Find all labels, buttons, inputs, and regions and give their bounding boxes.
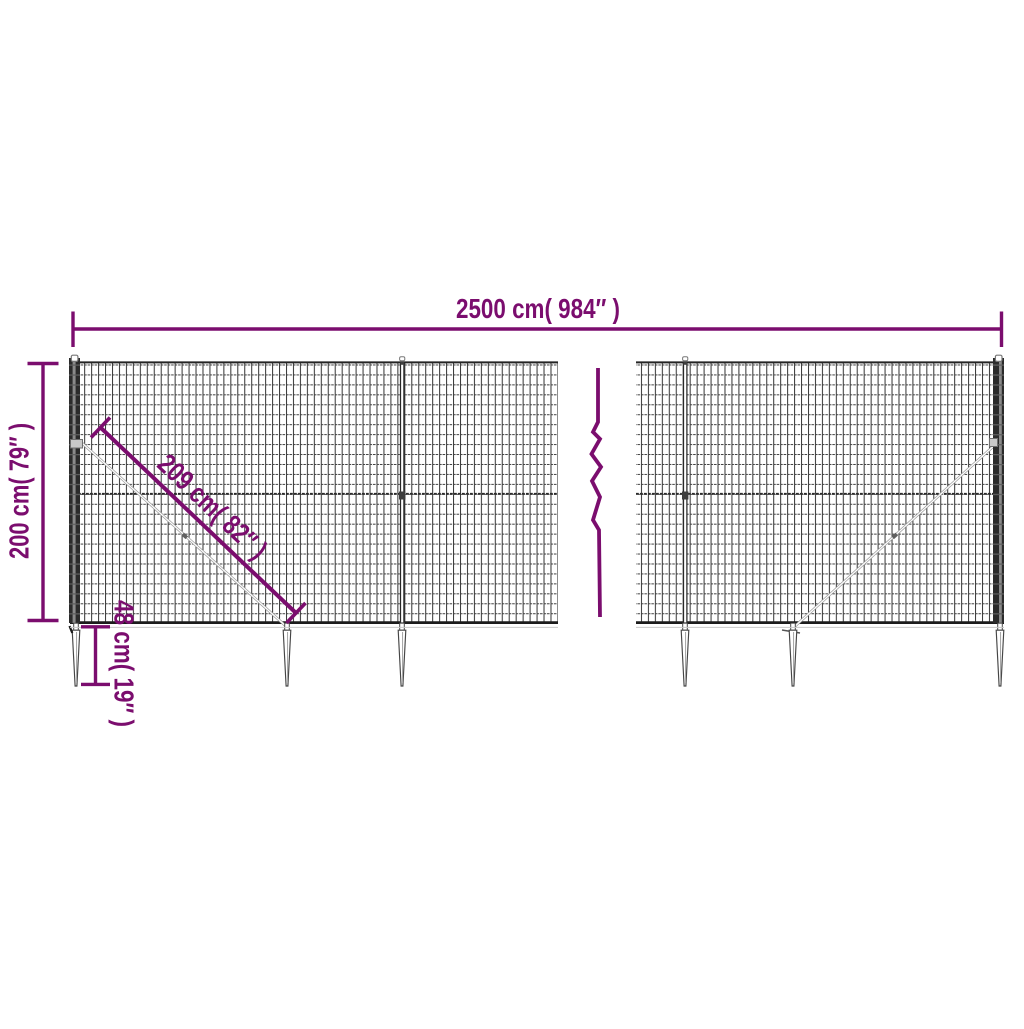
svg-text:48 cm( 19″ ): 48 cm( 19″ ) [109,600,140,727]
svg-text:200 cm( 79″ ): 200 cm( 79″ ) [4,423,35,559]
svg-text:2500 cm( 984″ ): 2500 cm( 984″ ) [456,293,620,324]
